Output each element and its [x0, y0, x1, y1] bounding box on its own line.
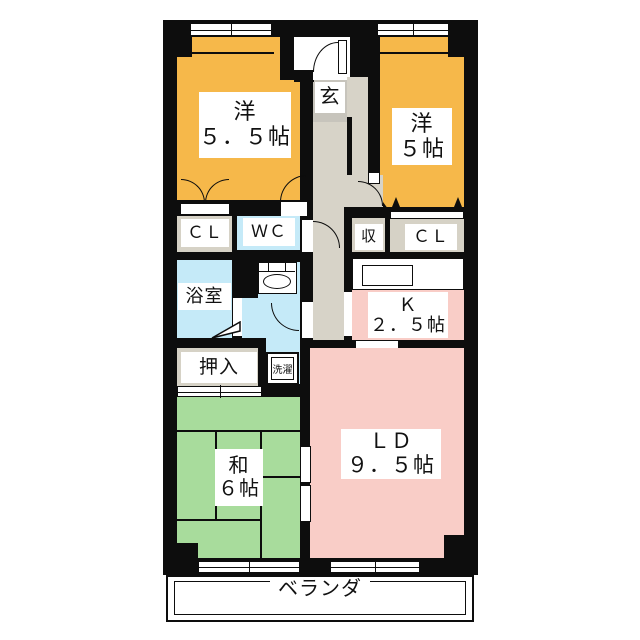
- wall-corner: [444, 535, 464, 560]
- closet-door-mark: [454, 197, 462, 207]
- window: [330, 561, 420, 573]
- tatami-line: [177, 519, 262, 521]
- wall-entry-left: [280, 20, 294, 80]
- wall-right: [464, 20, 478, 575]
- sliding-door-panel: [300, 485, 311, 522]
- hallway-right-column: [352, 122, 368, 182]
- oshiire-sliding-door: [177, 386, 262, 397]
- wall-counter-top: [344, 252, 464, 258]
- wall-entry-right: [350, 20, 368, 77]
- kitchen-sink-icon: [362, 265, 413, 286]
- label-kitchen: Ｋ２．５帖: [368, 292, 448, 338]
- window: [377, 23, 449, 36]
- balcony: ベランダ: [166, 575, 474, 622]
- wall-hall-divider: [347, 117, 352, 175]
- tatami-line: [177, 430, 300, 432]
- laundry-label: 洗濯: [273, 361, 293, 376]
- label-closet-right: ＣＬ: [405, 224, 457, 250]
- wall-cl-bath: [163, 252, 242, 260]
- entry-door-leaf: [338, 40, 347, 74]
- label-oshiire: 押入: [181, 352, 257, 383]
- closet-door-mark: [392, 197, 400, 207]
- label-bathroom: 浴室: [178, 283, 231, 310]
- wall-corner: [177, 37, 192, 57]
- door-jamb: [368, 172, 380, 184]
- label-toilet: ＷＣ: [243, 218, 295, 246]
- label-entry: 玄: [315, 82, 345, 113]
- floor-plan: 洗濯 ベランダ 洋５．５帖 洋５帖 玄 ＣＬ ＷＣ 収 ＣＬ 浴室 押入 Ｋ２．…: [0, 0, 640, 640]
- wall-oshiire-east: [258, 348, 266, 386]
- door-opening: [344, 292, 352, 336]
- balcony-label: ベランダ: [270, 578, 370, 600]
- hallway-upper-right: [347, 77, 368, 122]
- wall-storage-cl: [385, 218, 390, 255]
- wall-western2-left: [368, 20, 380, 182]
- closet-opening-left: [180, 203, 230, 215]
- laundry-space: 洗濯: [266, 352, 299, 385]
- label-living-dining: ＬＤ９．５帖: [341, 429, 441, 479]
- wall-cl-wc: [232, 200, 237, 255]
- washbasin-icon: [258, 262, 297, 294]
- tatami-line: [260, 476, 300, 478]
- door-opening: [302, 302, 313, 338]
- door-opening: [302, 220, 313, 252]
- wall-corner: [177, 543, 198, 560]
- label-tatami: 和６帖: [215, 449, 263, 506]
- pass-opening: [356, 341, 398, 348]
- window-recess-line: [190, 52, 274, 54]
- wall-wc-block: [232, 250, 258, 298]
- label-western2: 洋５帖: [392, 108, 452, 165]
- label-storage: 収: [355, 224, 383, 250]
- door-opening: [281, 202, 307, 216]
- sliding-door-panel: [300, 446, 311, 483]
- label-closet-left: ＣＬ: [181, 219, 229, 247]
- bathroom-door-icon: [211, 321, 241, 339]
- window: [198, 561, 300, 573]
- label-western1: 洋５．５帖: [199, 92, 291, 158]
- wall-left: [163, 20, 177, 575]
- window-recess-line: [380, 52, 450, 54]
- window: [190, 23, 272, 36]
- wall-washroom-bottom: [262, 384, 300, 397]
- wall-wc-bottom: [258, 250, 300, 262]
- closet-opening-right: [390, 211, 464, 219]
- wall-oshiire-top: [163, 338, 266, 348]
- wall-corner: [448, 37, 464, 57]
